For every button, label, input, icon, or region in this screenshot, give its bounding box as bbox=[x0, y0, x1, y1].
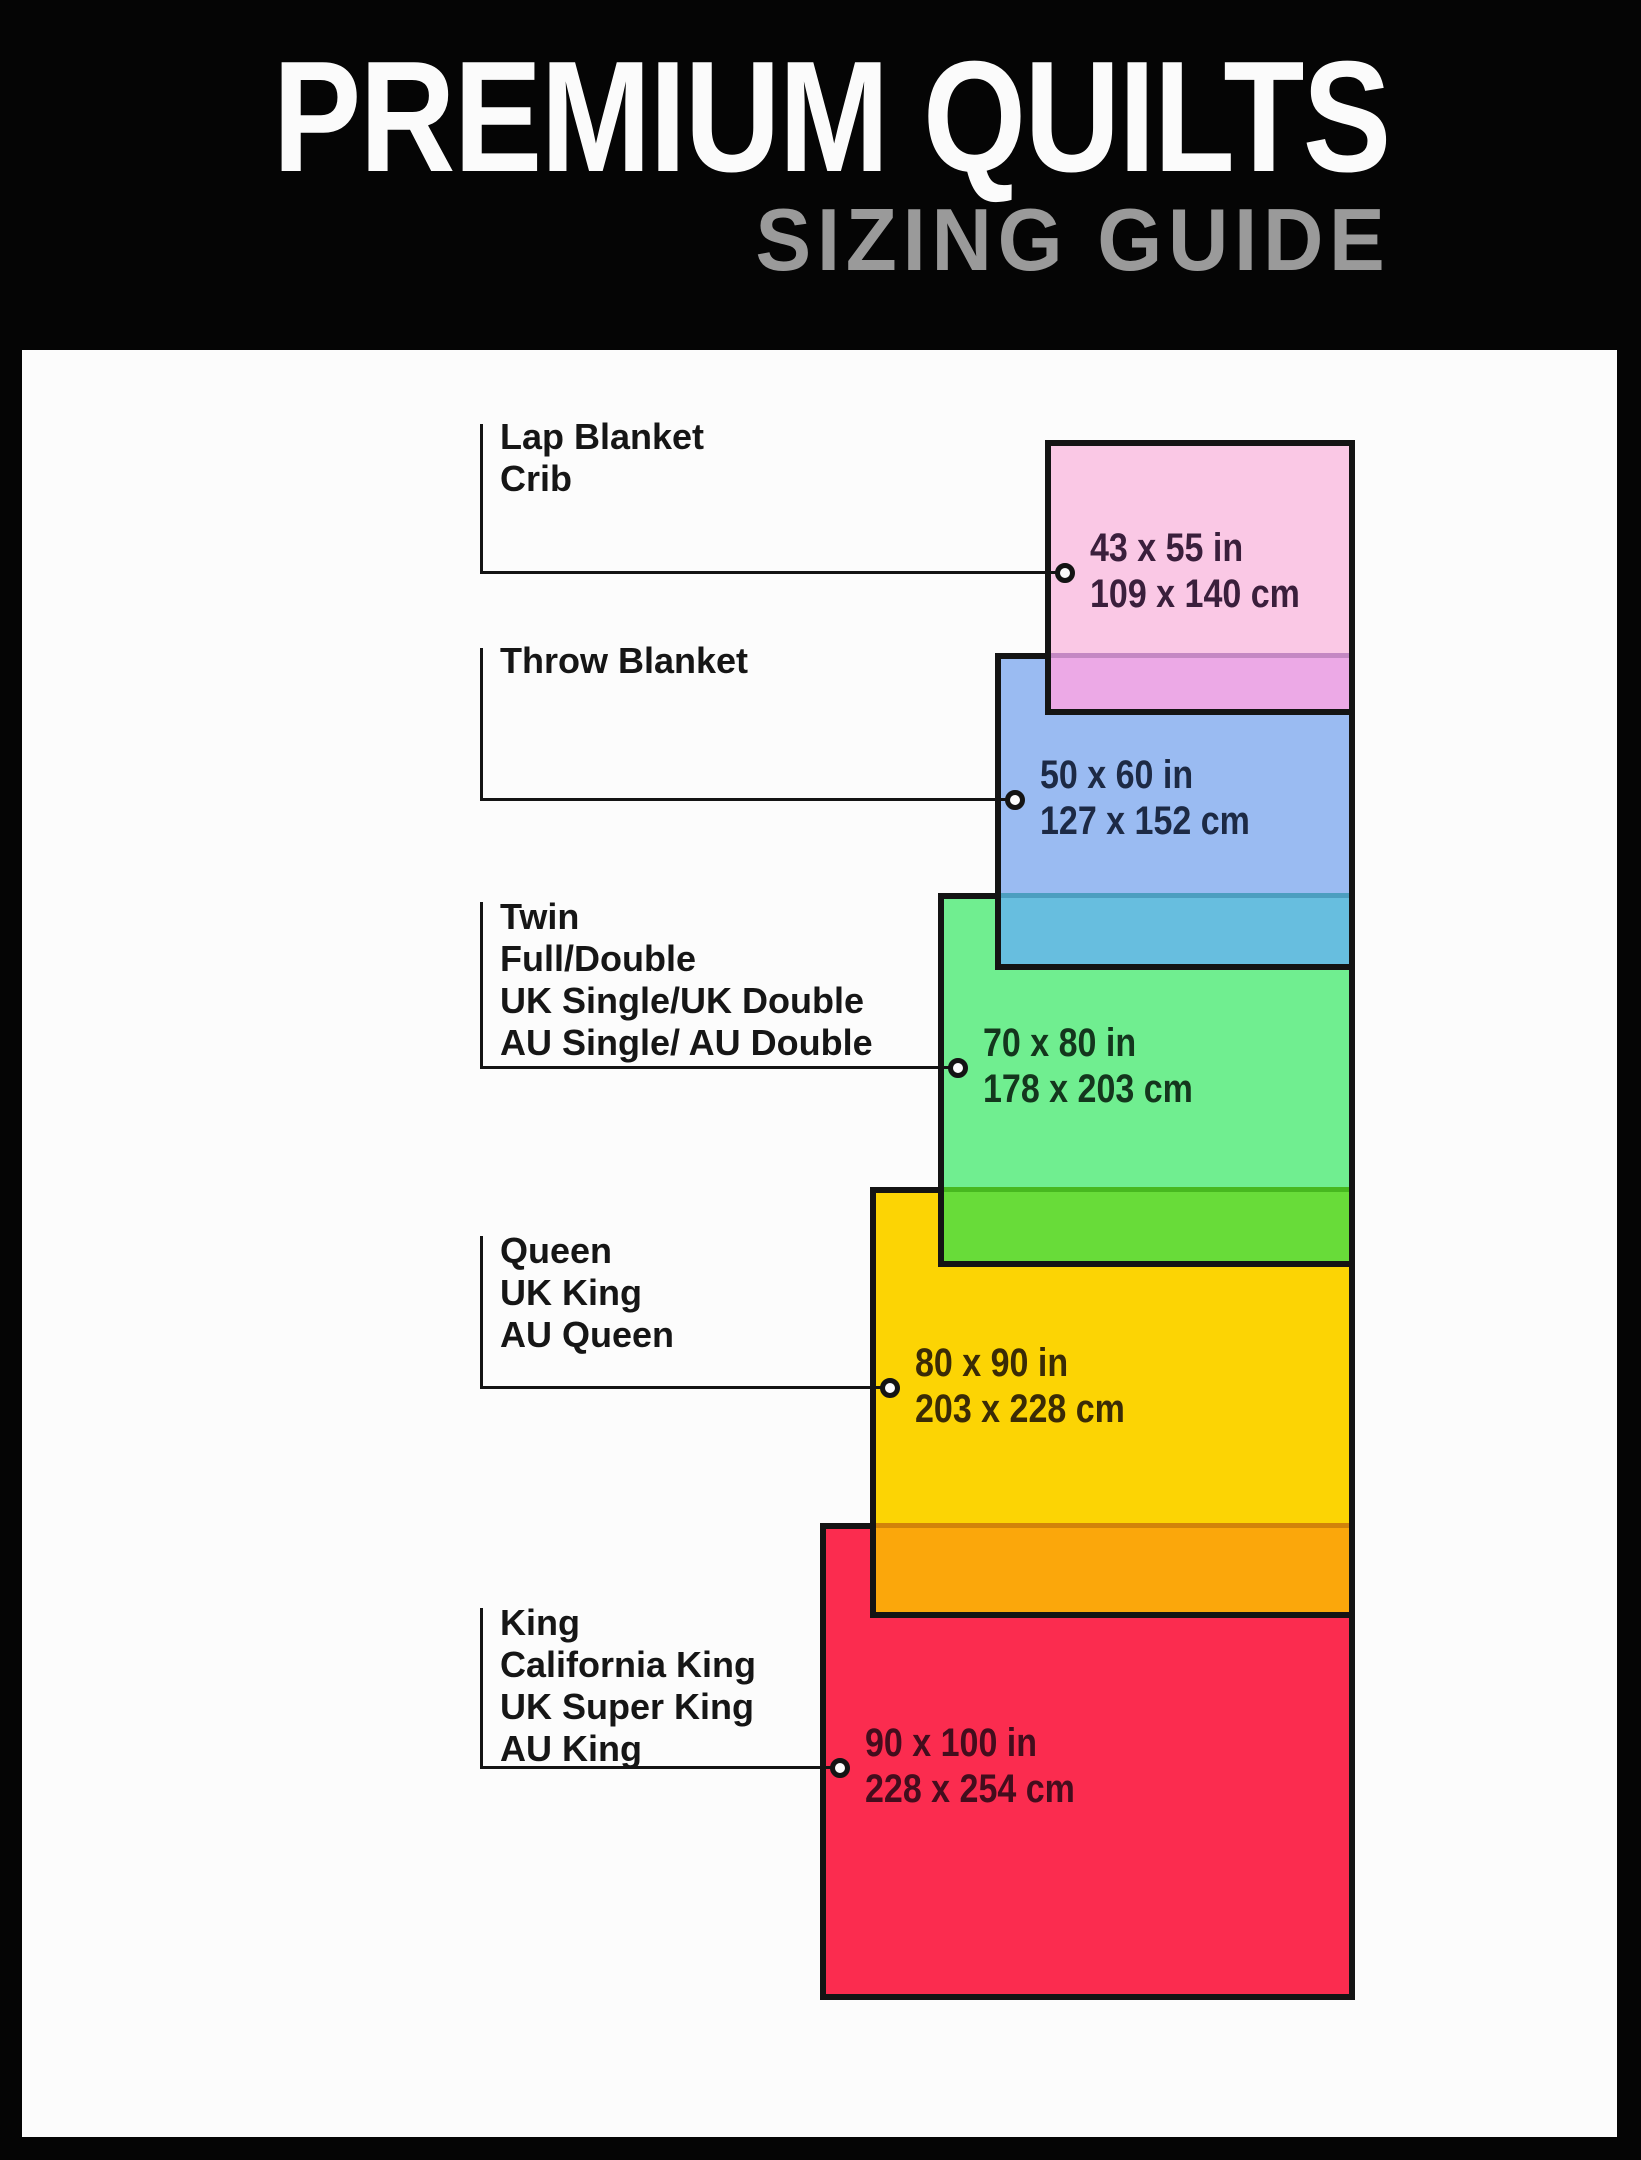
page-subtitle: SIZING GUIDE bbox=[755, 196, 1390, 284]
infographic-page: PREMIUM QUILTS SIZING GUIDE King Califor… bbox=[0, 0, 1641, 2160]
diagram-panel bbox=[22, 350, 1617, 2137]
page-title: PREMIUM QUILTS bbox=[273, 38, 1390, 196]
